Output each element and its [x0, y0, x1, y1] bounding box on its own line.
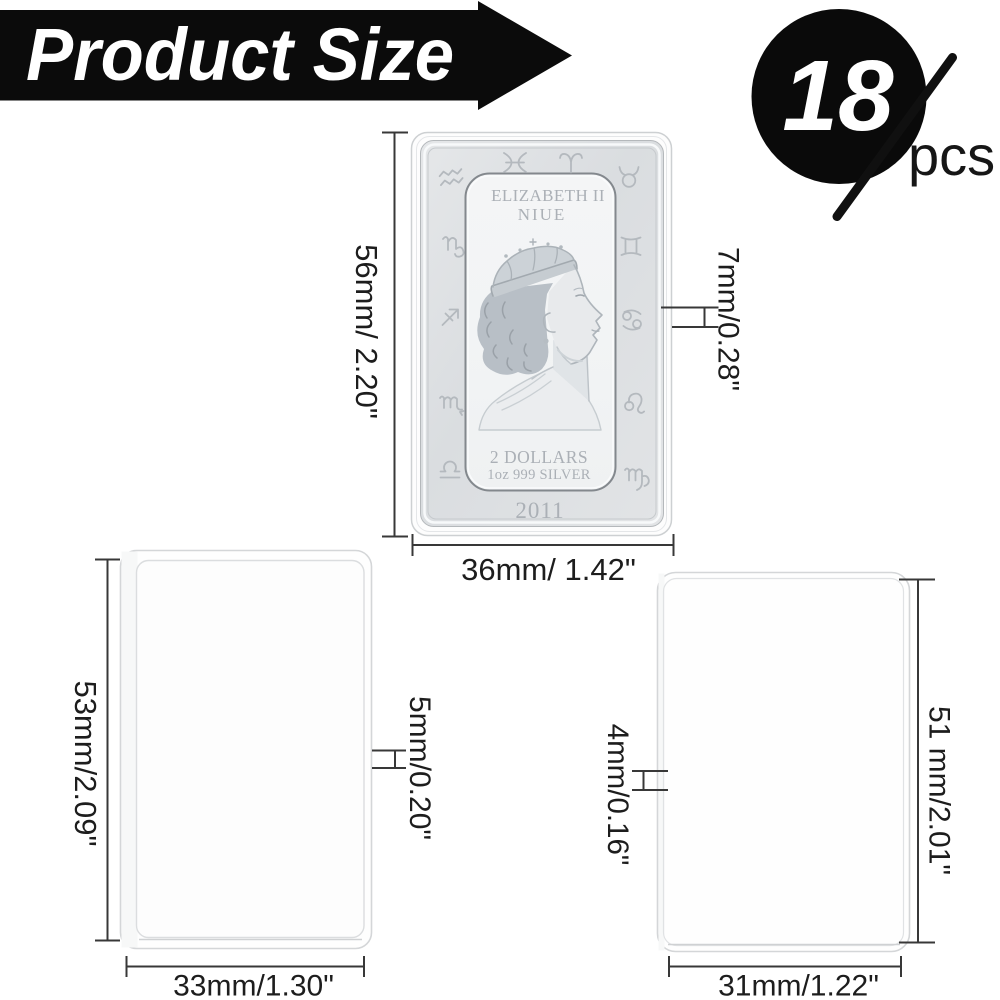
svg-text:18: 18 — [782, 40, 894, 152]
svg-text:Product Size: Product Size — [26, 13, 454, 96]
svg-text:2011: 2011 — [515, 498, 564, 523]
svg-text:1oz 999 SILVER: 1oz 999 SILVER — [487, 467, 591, 483]
svg-text:36mm/ 1.42": 36mm/ 1.42" — [461, 552, 636, 587]
svg-text:53mm/2.09": 53mm/2.09" — [68, 680, 103, 846]
svg-text:2 DOLLARS: 2 DOLLARS — [490, 447, 588, 467]
svg-text:pcs: pcs — [908, 124, 995, 187]
svg-text:7mm/0.28": 7mm/0.28" — [712, 247, 745, 391]
svg-text:5mm/0.20": 5mm/0.20" — [403, 696, 436, 840]
svg-text:56mm/ 2.20": 56mm/ 2.20" — [349, 244, 384, 419]
svg-text:NIUE: NIUE — [518, 205, 567, 224]
svg-text:31mm/1.22": 31mm/1.22" — [718, 970, 879, 1000]
svg-text:51 mm/2.01": 51 mm/2.01" — [923, 706, 956, 875]
svg-text:33mm/1.30": 33mm/1.30" — [173, 970, 334, 1000]
svg-text:ELIZABETH II: ELIZABETH II — [491, 186, 605, 205]
svg-text:4mm/0.16": 4mm/0.16" — [601, 724, 634, 866]
